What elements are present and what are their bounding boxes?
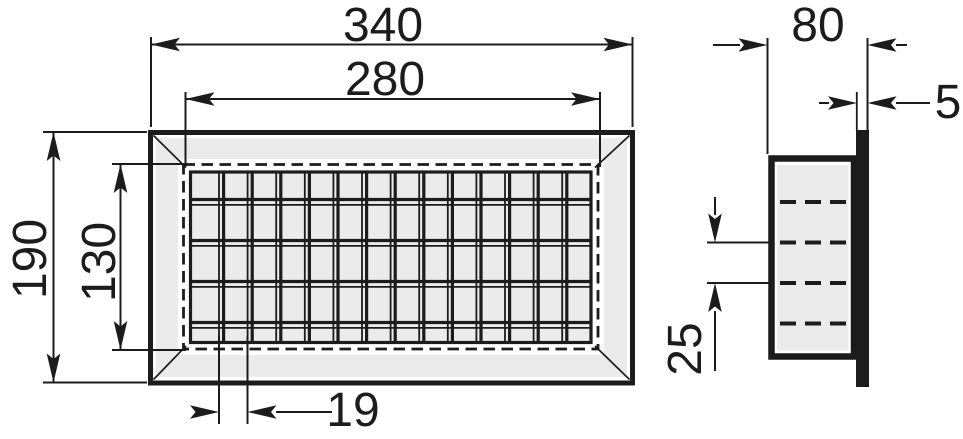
dim-label-depth: 80 [791,0,844,52]
arrowhead-bottom [708,283,722,312]
front-view [151,133,633,384]
dim-label-flange-thickness: 5 [935,76,962,129]
extension-line [768,38,868,154]
dim-row-spacing: 25 [659,197,770,376]
arrowhead-left [190,405,219,419]
arrowhead-left [739,38,768,52]
mounting-flange [856,130,869,387]
arrowhead-right [248,405,277,419]
arrowhead-left [828,96,857,110]
dim-flange-thickness: 5 [819,76,961,130]
dimension-drawing: 340 280 190 130 19 80 [0,0,963,439]
arrowhead-right [868,38,897,52]
dim-label-slat-pitch: 19 [326,384,379,437]
arrowhead-right [868,96,897,110]
dim-label-outer-height: 190 [4,219,57,299]
drawing-canvas: 340 280 190 130 19 80 [0,0,963,439]
side-view [772,130,870,387]
extension-line [707,243,770,284]
dim-label-row-spacing: 25 [659,322,712,375]
dim-depth: 80 [713,0,907,154]
dim-label-inner-height: 130 [73,222,126,302]
dim-label-inner-width: 280 [345,53,425,106]
arrowhead-top [708,214,722,243]
dim-label-outer-width: 340 [343,0,423,52]
